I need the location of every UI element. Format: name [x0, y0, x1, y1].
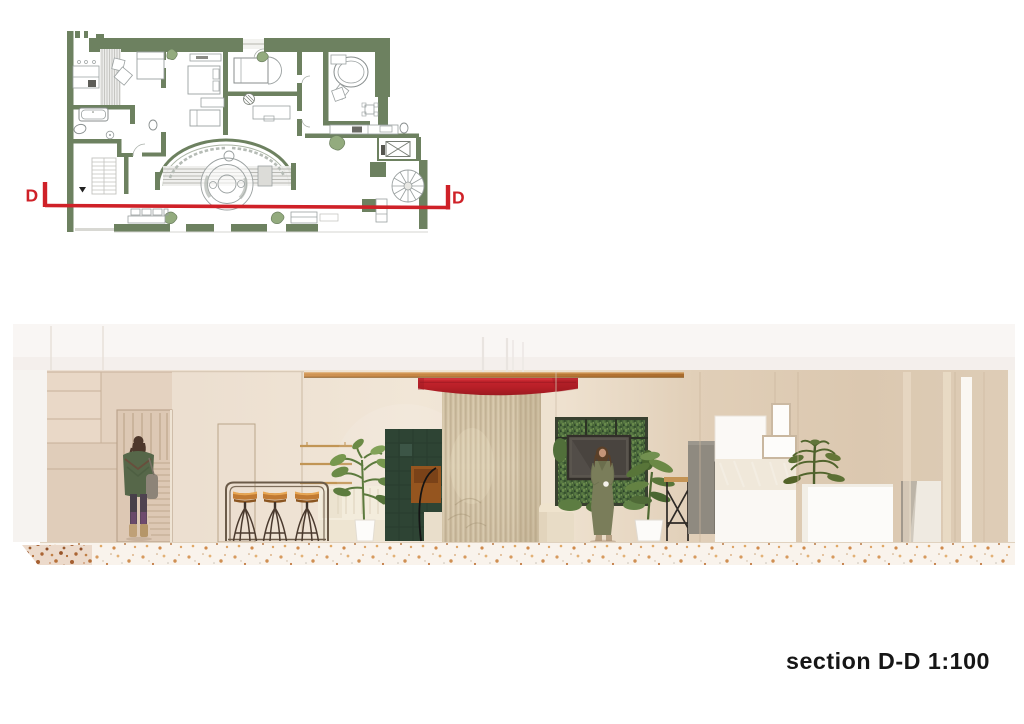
- svg-text:D: D: [452, 188, 465, 208]
- svg-text:D: D: [26, 186, 39, 206]
- svg-text:section D-D 1:100: section D-D 1:100: [786, 648, 990, 674]
